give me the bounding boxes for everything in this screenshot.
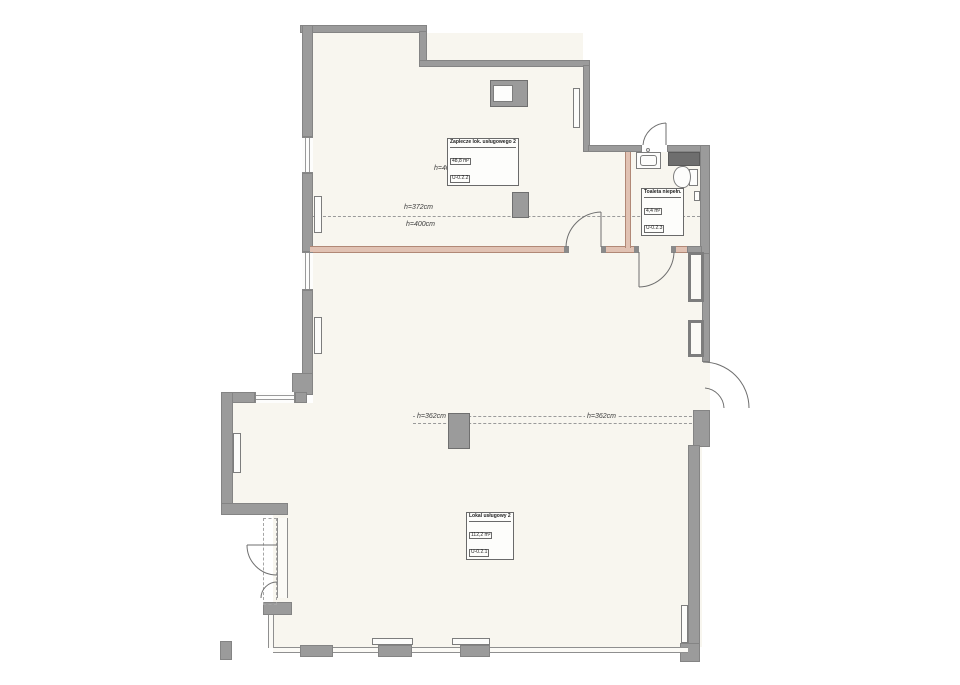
door-jamb-3: [634, 246, 639, 253]
floor-plan-canvas: h=400cm h=372cm h=400cm h=372cm h=400cm …: [0, 0, 960, 685]
chimney-flue-opening: [493, 85, 513, 102]
wall-toilet-top-left-seg: [588, 145, 642, 152]
wc-paper-holder: [694, 191, 700, 201]
entrance-sidelight: [277, 518, 288, 598]
door-jamb-2: [601, 246, 606, 253]
room-area: 112,2 m²: [469, 532, 492, 540]
window-glass-line: [256, 399, 294, 400]
new-wall-horizontal-left: [310, 246, 564, 253]
height-label-mid-left-upper: h=372cm: [402, 204, 435, 212]
washbasin-tap-icon: [646, 148, 650, 152]
height-label-lower-left: h=362cm: [415, 413, 448, 421]
wall-top-step: [419, 31, 427, 62]
entrance-dashed-outline: [263, 518, 277, 605]
wall-top-left: [300, 25, 427, 33]
storefront-pier-3: [460, 645, 490, 657]
room-name: Lokal usługowy 2: [469, 514, 511, 522]
column-main-room: [448, 413, 470, 449]
height-label-lower-right: h=362cm: [585, 413, 618, 421]
window-glass-line: [309, 253, 310, 289]
wall-top-right: [419, 60, 590, 67]
wall-left-upper-2: [302, 173, 313, 252]
room-label-toilet: Toaleta niepełn. 4,4 m² U-0.2.3: [641, 188, 684, 236]
radiator-bottom-1: [372, 638, 413, 645]
door-jamb-4: [671, 246, 676, 253]
glazing-left-bottom: [268, 615, 274, 648]
window-step-wall: [255, 392, 295, 403]
toilet-duct-shaft: [668, 152, 700, 166]
new-wall-horizontal-right: [676, 246, 687, 253]
wall-bottom-left: [221, 503, 288, 515]
radiator-notch: [233, 433, 241, 473]
wall-right-door-pier: [693, 410, 710, 447]
storefront-pier-1: [300, 645, 333, 657]
window-glass-line: [256, 395, 294, 396]
column-top-room: [512, 192, 529, 218]
new-wall-toilet-partition: [625, 152, 631, 248]
wall-right-lower: [688, 445, 700, 645]
window-left-upper: [302, 137, 313, 173]
room-code: U-0.2.2: [450, 175, 470, 183]
room-code: U-0.2.3: [644, 225, 664, 233]
height-label-mid-left-lower: h=400cm: [404, 221, 437, 229]
room-code: U-0.2.1: [469, 549, 489, 557]
floor-left-notch: [233, 403, 313, 515]
wall-niche-upper: [688, 252, 704, 302]
radiator-left-1: [314, 196, 322, 233]
radiator-bottom-2: [452, 638, 490, 645]
window-glass-line: [305, 253, 306, 289]
window-glass-line: [305, 138, 306, 172]
room-name: Zaplecze lok. usługowego 2: [450, 140, 516, 148]
radiator-left-2: [314, 317, 322, 354]
exterior-column: [220, 641, 232, 660]
radiator-right-lower: [681, 605, 688, 643]
room-label-main: Lokal usługowy 2 112,2 m² U-0.2.1: [466, 512, 514, 560]
wall-left-upper-1: [302, 25, 313, 137]
window-glass-line: [309, 138, 310, 172]
radiator-top-room: [573, 88, 580, 128]
room-label-backroom: Zaplecze lok. usługowego 2 48,8 m² U-0.2…: [447, 138, 519, 186]
door-toilet-top: [643, 123, 666, 145]
room-area: 48,8 m²: [450, 158, 471, 166]
wall-step-horizontal-right: [295, 392, 307, 403]
wall-topروom-right: [583, 65, 590, 152]
wall-toilet-right: [700, 145, 710, 255]
door-jamb-1: [564, 246, 569, 253]
room-area: 4,4 m²: [644, 208, 662, 216]
room-name: Toaleta niepełn.: [644, 190, 681, 198]
storefront-pier-2: [378, 645, 412, 657]
floor-main-room: [313, 247, 702, 647]
window-left-lower: [302, 252, 313, 290]
washbasin-bowl: [640, 155, 657, 166]
wall-left-lower: [221, 392, 233, 515]
wall-niche-lower: [688, 320, 704, 357]
floor-door-reveal-right: [700, 362, 710, 410]
wc-bowl: [673, 166, 691, 188]
